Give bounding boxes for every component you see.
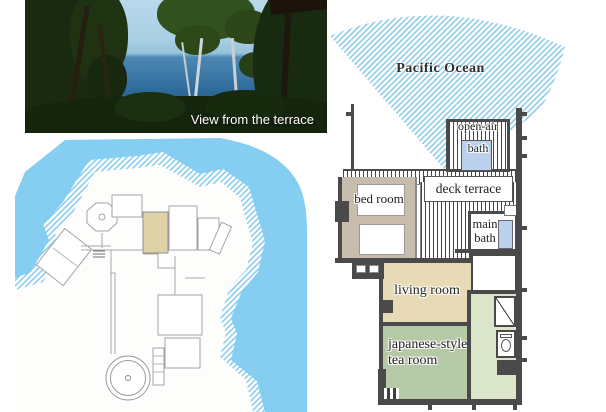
living-room-label: living room bbox=[383, 283, 471, 299]
open-air-bath-label-line2: bath bbox=[446, 142, 510, 155]
bed bbox=[359, 224, 405, 255]
wall-segment bbox=[379, 262, 383, 403]
living-room-label-text: living room bbox=[394, 283, 460, 298]
site-plan bbox=[15, 138, 307, 412]
toilet-room bbox=[496, 330, 516, 358]
wall-tick bbox=[513, 404, 517, 410]
building bbox=[158, 295, 202, 335]
wall-tick bbox=[522, 226, 527, 230]
wall-tick bbox=[346, 112, 352, 116]
deck-terrace-label-box: deck terrace bbox=[424, 176, 513, 202]
deck-terrace-label: deck terrace bbox=[436, 181, 502, 197]
wall-tick bbox=[522, 136, 527, 140]
wall-segment bbox=[383, 322, 471, 326]
photo-caption: View from the terrace bbox=[191, 112, 314, 127]
wall-tick bbox=[522, 288, 527, 292]
corridor bbox=[471, 293, 518, 400]
main-bath-label-line1: main bbox=[466, 217, 504, 231]
page: View from the terrace bbox=[0, 0, 606, 412]
sink bbox=[356, 265, 366, 273]
wall-segment bbox=[467, 290, 522, 294]
wall-tick bbox=[472, 404, 476, 410]
stairs bbox=[494, 296, 516, 327]
wall-segment bbox=[335, 258, 471, 263]
wall-tick bbox=[522, 112, 527, 116]
bed-room-label-text: bed room bbox=[354, 191, 403, 206]
toilet-bowl bbox=[501, 339, 511, 352]
toilet-tank bbox=[500, 334, 512, 338]
tea-room-label-line1: japanese-style bbox=[388, 337, 473, 353]
bush bbox=[115, 92, 185, 122]
building bbox=[112, 195, 142, 217]
dark-block bbox=[497, 360, 516, 375]
open-air-bath-label-line1: open-air bbox=[446, 120, 510, 133]
main-bath-label: main bath bbox=[466, 217, 504, 245]
terrace-photo: View from the terrace bbox=[25, 0, 327, 133]
main-bath-label-line2: bath bbox=[466, 231, 504, 245]
building bbox=[165, 338, 200, 368]
wall-tick bbox=[428, 404, 432, 410]
tea-room-label: japanese-style tea room bbox=[388, 337, 473, 369]
wall-segment bbox=[378, 399, 522, 405]
ocean-label: Pacific Ocean bbox=[383, 61, 498, 77]
wall-tick bbox=[522, 358, 527, 362]
wall-segment bbox=[467, 290, 471, 403]
bed-room-label: bed room bbox=[341, 191, 417, 207]
sink bbox=[369, 265, 379, 273]
wall-tick bbox=[522, 336, 527, 340]
open-air-bath-label: open-air bath bbox=[446, 120, 510, 155]
highlighted-building bbox=[143, 212, 168, 253]
building bbox=[169, 206, 197, 250]
tea-room-label-line2: tea room bbox=[388, 353, 473, 369]
wall-tick bbox=[522, 154, 527, 158]
utility-room bbox=[470, 253, 518, 293]
building bbox=[153, 348, 164, 385]
wall-segment bbox=[455, 249, 518, 253]
